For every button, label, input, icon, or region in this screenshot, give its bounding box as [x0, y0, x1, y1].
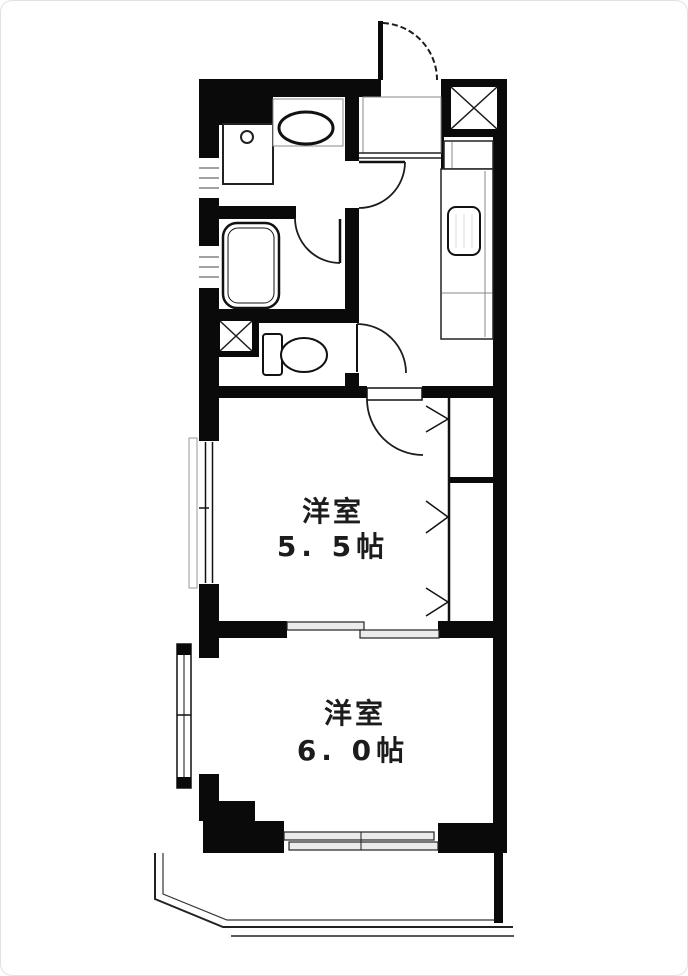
closet-divider — [449, 477, 493, 483]
wall-top-left-chunk — [199, 79, 273, 125]
room1-name-label: 洋室 — [302, 495, 364, 528]
washroom-window — [199, 158, 219, 198]
sliding-window-panel — [289, 842, 438, 850]
door-panel — [367, 388, 422, 400]
toilet-tank-icon — [263, 334, 282, 375]
window-cap — [177, 644, 191, 655]
kitchen — [441, 141, 493, 339]
wall-corner-block — [219, 801, 255, 821]
wall-left — [199, 198, 219, 246]
balcony-right-wall — [494, 853, 503, 923]
wall-room1-top-left — [199, 386, 367, 398]
window-outer-sash — [189, 438, 197, 588]
pipe-space-top — [441, 79, 507, 137]
wall-bottom-left — [203, 821, 284, 853]
room1-window — [189, 436, 219, 589]
room2-name-label: 洋室 — [324, 697, 386, 730]
wall-hall-mid — [345, 208, 359, 323]
bathroom-window — [199, 246, 219, 288]
window-opening — [199, 658, 219, 774]
window-cap — [199, 584, 219, 589]
room2-bay-window — [177, 644, 219, 788]
floor-plan-svg: 洋室 5. 5帖 洋室 6. 0帖 — [1, 1, 688, 976]
balcony-outer-line — [155, 853, 513, 927]
entrance-door-leaf — [378, 21, 383, 80]
wall-hall-upper — [345, 97, 359, 161]
room2-size-label: 6. 0帖 — [297, 734, 409, 767]
wall-left — [199, 125, 219, 158]
wall-top — [273, 79, 381, 97]
wall-right — [493, 79, 507, 853]
wall-washroom-bath — [199, 206, 296, 219]
drain-icon — [241, 131, 253, 143]
window-cap — [199, 436, 219, 441]
entrance-door-arc-icon — [383, 23, 437, 80]
window-cap — [177, 777, 191, 788]
wall-room-divider-left — [199, 621, 287, 638]
wall-left — [199, 774, 219, 821]
sliding-window-panel — [284, 832, 434, 840]
bathtub-icon — [223, 223, 279, 308]
sliding-door-panel — [360, 630, 439, 638]
sliding-door-panel — [287, 622, 364, 630]
floor-plan-page: 洋室 5. 5帖 洋室 6. 0帖 — [0, 0, 688, 976]
toilet-bowl-icon — [281, 338, 327, 372]
pipe-space-toilet — [213, 315, 259, 357]
kitchen-top-cabinet — [444, 141, 493, 169]
window-opening — [199, 436, 219, 589]
balcony — [155, 853, 514, 936]
room1-size-label: 5. 5帖 — [277, 530, 389, 563]
wash-basin-icon — [279, 112, 333, 144]
balcony-inner-line — [163, 853, 494, 920]
